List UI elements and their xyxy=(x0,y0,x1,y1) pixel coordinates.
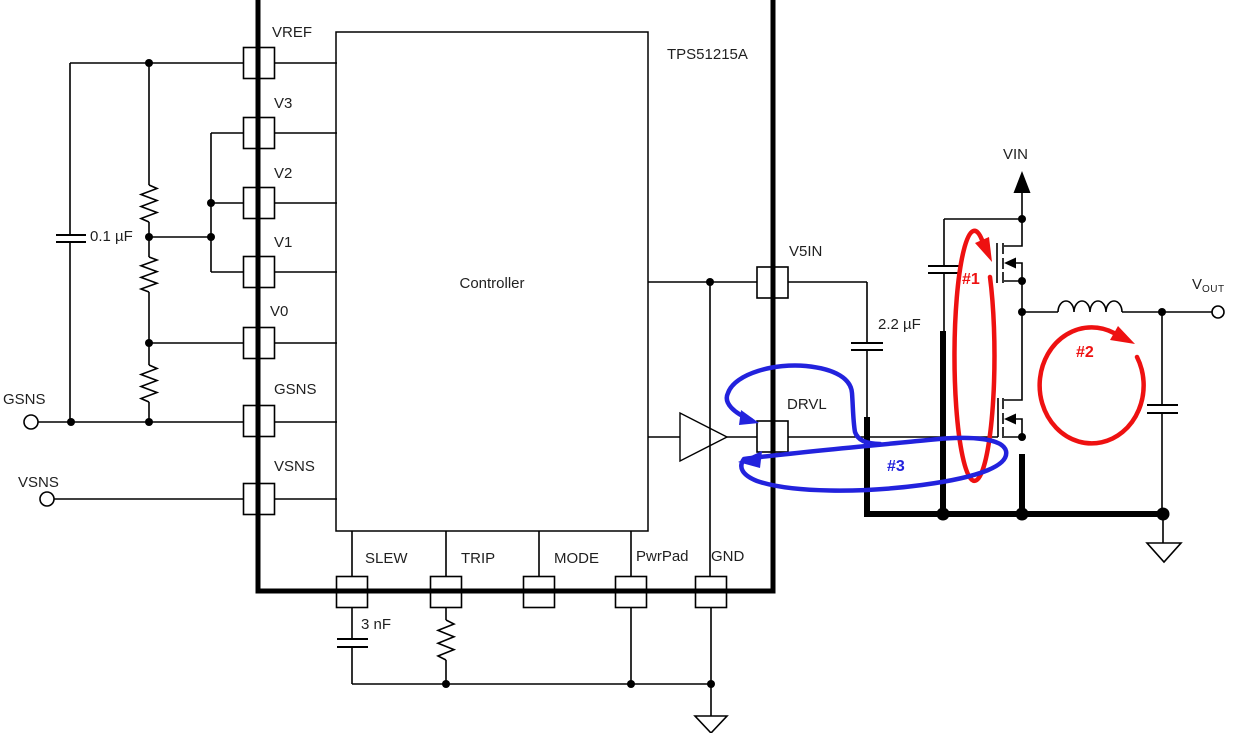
input-cap xyxy=(928,266,960,273)
ground-symbol-output xyxy=(1147,543,1181,562)
loop3-label: #3 xyxy=(887,458,905,475)
pin-label-trip: TRIP xyxy=(461,550,495,567)
vsns-terminal xyxy=(40,492,54,506)
resistor-top xyxy=(141,185,157,222)
low-side-mosfet xyxy=(998,312,1022,438)
cap-label-v5in: 2.2 µF xyxy=(878,316,921,333)
slew-cap xyxy=(337,639,368,647)
pin-label-mode: MODE xyxy=(554,550,599,567)
loop1-label: #1 xyxy=(962,271,980,288)
resistor-mid xyxy=(141,257,157,292)
buffer-gate xyxy=(680,413,727,461)
output-cap xyxy=(1147,405,1178,413)
ground-symbols xyxy=(695,543,1181,733)
rail-label-vin: VIN xyxy=(1003,146,1028,163)
terminal-label-vsns: VSNS xyxy=(18,474,59,491)
body-diode-arrow xyxy=(1004,258,1016,269)
body-diode-arrow xyxy=(1004,414,1016,425)
rail-label-vout: VOUT xyxy=(1192,276,1225,298)
pin-label-slew: SLEW xyxy=(365,550,408,567)
loop1-annotation xyxy=(954,231,994,481)
loop2-label: #2 xyxy=(1076,344,1094,361)
vref-cap xyxy=(56,235,86,242)
pin-label-v3: V3 xyxy=(274,95,292,112)
schematic-figure: VREF V3 V2 V1 V0 GSNS VSNS GSNS VSNS 0.1… xyxy=(0,0,1233,733)
pin-label-v0: V0 xyxy=(270,303,288,320)
pin-label-drvl: DRVL xyxy=(787,396,827,413)
pin-label-v1: V1 xyxy=(274,234,292,251)
resistor-bottom xyxy=(141,365,157,402)
schematic-canvas xyxy=(0,0,1233,733)
gsns-terminal xyxy=(24,415,38,429)
pin-label-gsns: GSNS xyxy=(274,381,317,398)
loop1-arrow xyxy=(975,237,992,262)
vin-arrow xyxy=(1014,171,1031,193)
trip-resistor xyxy=(438,620,454,660)
vout-terminal xyxy=(1212,306,1224,318)
pin-label-vref: VREF xyxy=(272,24,312,41)
cap-label-slew: 3 nF xyxy=(361,616,391,633)
loop2-arrow xyxy=(1110,326,1135,344)
cap-label-vref: 0.1 µF xyxy=(90,228,133,245)
pin-label-pwrpad: PwrPad xyxy=(636,548,689,565)
pin-label-vsns: VSNS xyxy=(274,458,315,475)
v5in-cap xyxy=(851,343,883,350)
loop3-arrow-in xyxy=(739,410,759,425)
pin-label-v2: V2 xyxy=(274,165,292,182)
high-side-mosfet xyxy=(997,219,1022,312)
controller-label: Controller xyxy=(336,275,648,292)
ground-symbol-signal xyxy=(695,716,727,733)
pin-label-v5in: V5IN xyxy=(789,243,822,260)
terminal-label-gsns: GSNS xyxy=(3,391,46,408)
pin-label-gnd: GND xyxy=(711,548,744,565)
part-number-label: TPS51215A xyxy=(667,46,748,63)
inductor xyxy=(1058,301,1122,312)
